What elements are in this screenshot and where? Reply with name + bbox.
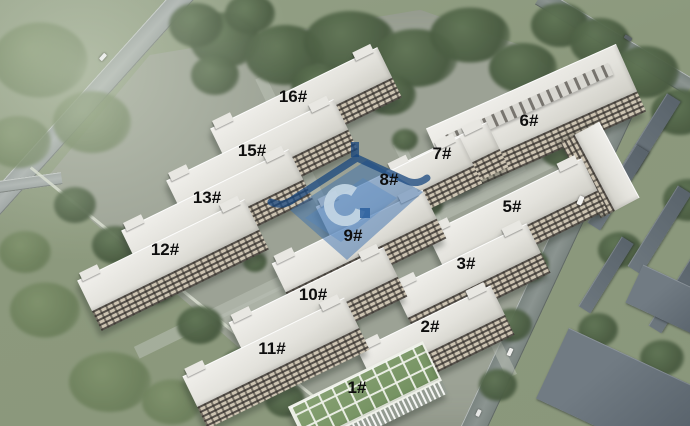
labels-layer: 16#15#13#12#11#10#9#8#7#6#5#3#2#1# [0,0,690,426]
building-label-10: 10# [299,285,327,305]
building-label-13: 13# [193,188,221,208]
building-label-6: 6# [520,111,539,131]
building-label-2: 2# [421,317,440,337]
building-label-15: 15# [238,141,266,161]
building-label-9: 9# [344,226,363,246]
building-label-8: 8# [380,170,399,190]
building-label-7: 7# [433,144,452,164]
building-label-1: 1# [348,378,367,398]
building-label-3: 3# [457,254,476,274]
building-label-12: 12# [151,240,179,260]
aerial-site-view: 16#15#13#12#11#10#9#8#7#6#5#3#2#1# [0,0,690,426]
building-label-5: 5# [503,197,522,217]
building-label-16: 16# [279,87,307,107]
building-label-11: 11# [258,339,285,359]
